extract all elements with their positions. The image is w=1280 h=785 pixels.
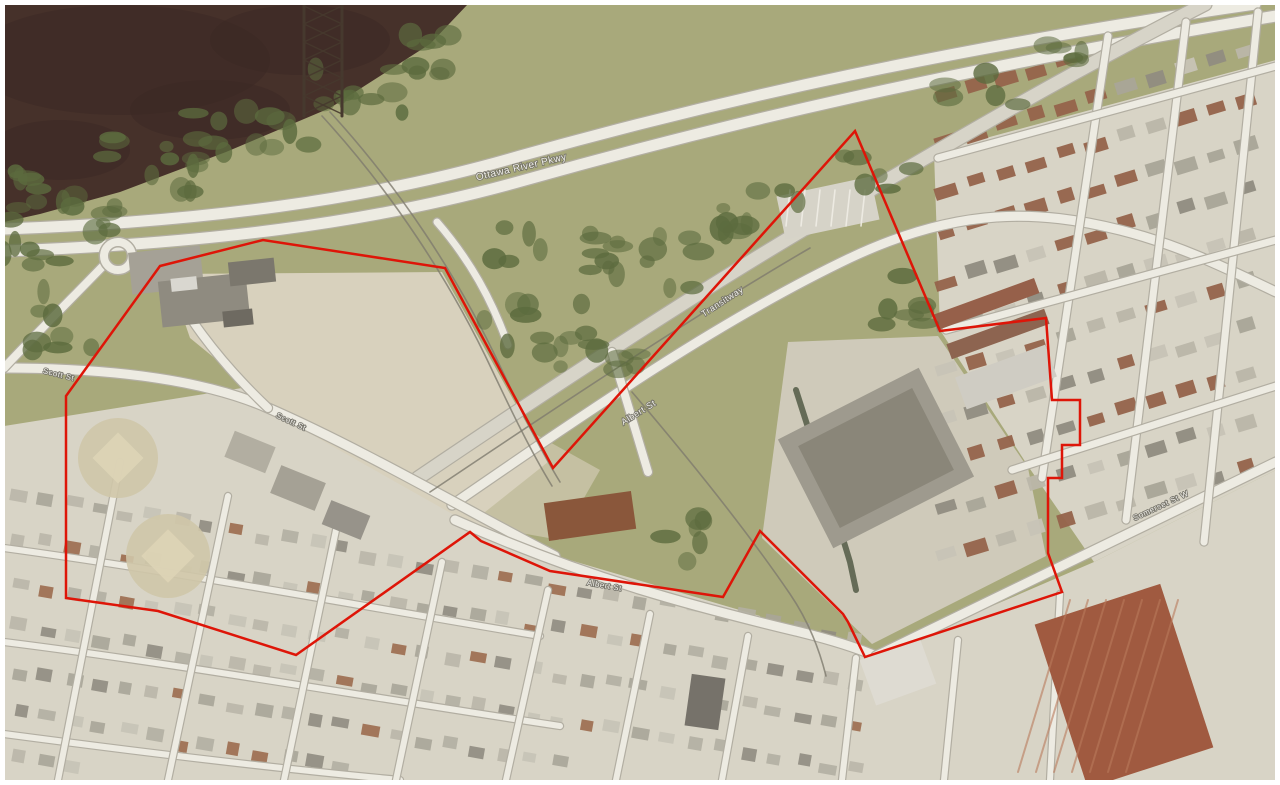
aerial-site-map: Ottawa River PkwyTransitwayAlbert StScot… [0,0,1280,785]
map-canvas: Ottawa River PkwyTransitwayAlbert StScot… [0,0,1280,785]
